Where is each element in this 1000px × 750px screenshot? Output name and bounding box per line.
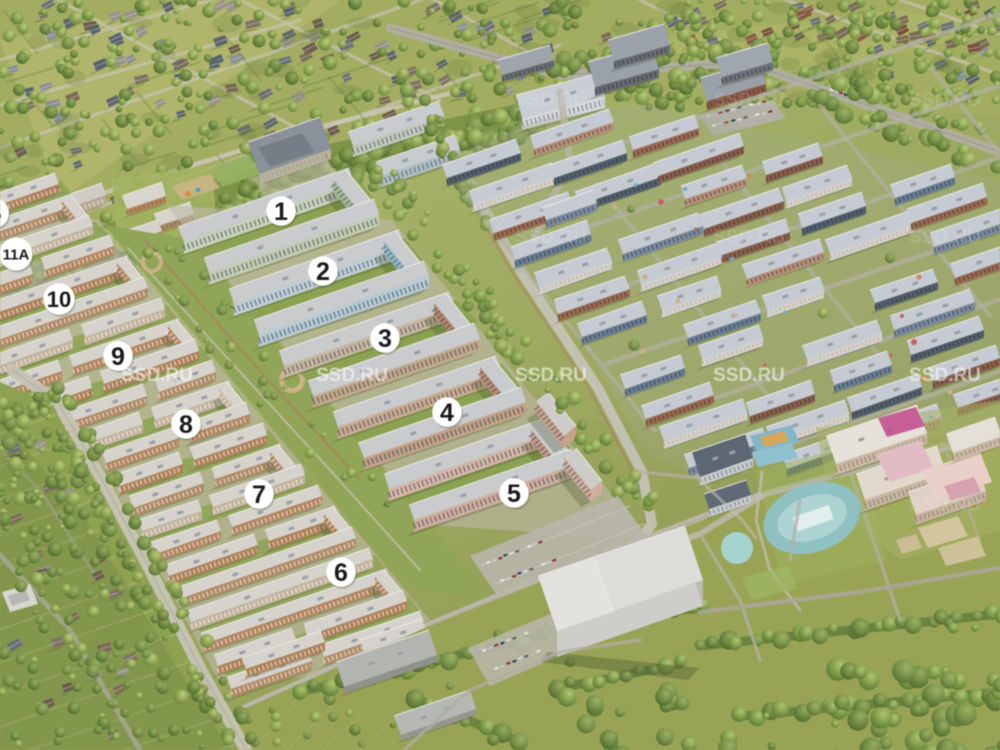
svg-text:8: 8 — [179, 411, 193, 439]
svg-text:SSD.RU: SSD.RU — [713, 365, 785, 386]
svg-text:3: 3 — [378, 325, 392, 353]
svg-text:SSD.RU: SSD.RU — [121, 365, 193, 386]
svg-text:SSD.RU: SSD.RU — [515, 365, 587, 386]
svg-text:SSD.RU: SSD.RU — [713, 227, 785, 248]
svg-text:SSD.RU: SSD.RU — [515, 227, 587, 248]
svg-text:7: 7 — [252, 481, 266, 509]
svg-text:11A: 11A — [3, 246, 30, 263]
svg-text:SSD.RU: SSD.RU — [316, 365, 388, 386]
svg-text:SSD.RU: SSD.RU — [909, 90, 981, 111]
svg-text:1: 1 — [274, 198, 288, 226]
svg-text:6: 6 — [334, 559, 348, 587]
svg-text:4: 4 — [440, 399, 454, 427]
svg-text:10: 10 — [47, 287, 71, 312]
svg-text:5: 5 — [507, 480, 521, 508]
svg-text:SSD.RU: SSD.RU — [713, 90, 785, 111]
svg-text:2: 2 — [316, 258, 330, 286]
svg-text:SSD.RU: SSD.RU — [909, 227, 981, 248]
svg-text:SSD.RU: SSD.RU — [909, 365, 981, 386]
svg-text:SSD.RU: SSD.RU — [515, 90, 587, 111]
svg-text:Б: Б — [0, 203, 2, 226]
svg-text:SSD.RU: SSD.RU — [909, 495, 981, 516]
